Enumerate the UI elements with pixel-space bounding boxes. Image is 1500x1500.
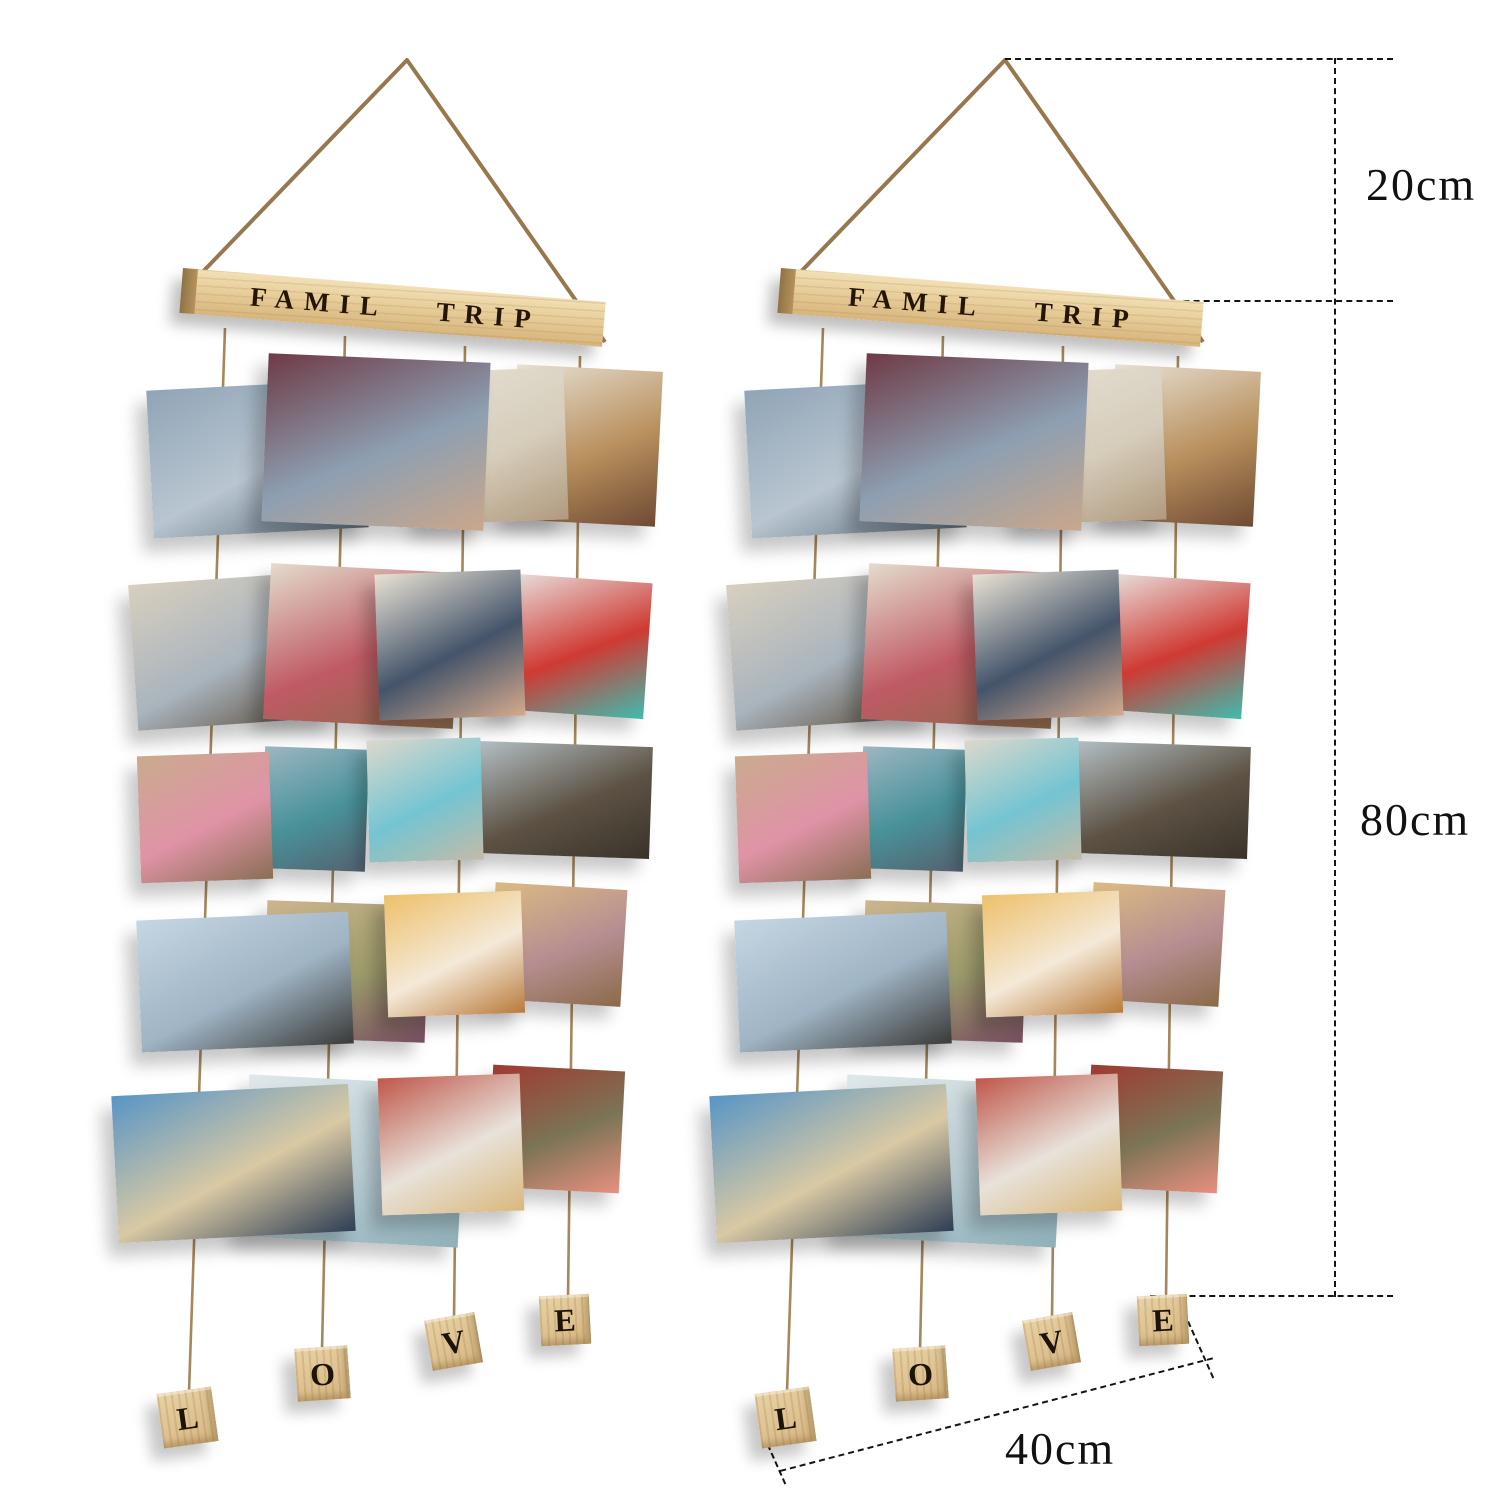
letter-block-l: L [156, 1386, 218, 1448]
product-image-canvas: FAMIL TRIP L O V E FAMIL TRIP L O V E [0, 0, 1500, 1500]
photo-hanger-right: FAMIL TRIP L O V E [713, 40, 1258, 1480]
letter-e: E [1152, 1303, 1175, 1336]
letter-block-v: V [1022, 1312, 1081, 1371]
dimension-label-body-height: 80cm [1360, 793, 1470, 846]
letter-block-e: E [1137, 1294, 1190, 1347]
letter-block-e: E [539, 1294, 592, 1347]
photo-row-5 [713, 40, 1258, 1480]
photo-row-5 [115, 40, 660, 1480]
letter-l: L [773, 1400, 799, 1435]
photo-woman-kissing-newborn [378, 1074, 525, 1216]
letter-l: L [175, 1400, 201, 1435]
photo-hanger-left: FAMIL TRIP L O V E [115, 40, 660, 1480]
letter-o: O [907, 1357, 934, 1391]
letter-block-o: O [892, 1345, 949, 1402]
letter-block-o: O [294, 1345, 351, 1402]
letter-o: O [309, 1357, 336, 1391]
photo-mom-and-kids-beach-stripes [709, 1084, 953, 1243]
letter-e: E [554, 1303, 577, 1336]
letter-block-l: L [754, 1386, 816, 1448]
photo-woman-kissing-newborn [976, 1074, 1123, 1216]
letter-block-v: V [424, 1312, 483, 1371]
letter-v: V [439, 1324, 467, 1360]
photo-mom-and-kids-beach-stripes [111, 1084, 355, 1243]
letter-v: V [1037, 1324, 1065, 1360]
dimension-line-vertical [1334, 58, 1336, 1297]
dimension-label-hang-height: 20cm [1366, 158, 1476, 211]
